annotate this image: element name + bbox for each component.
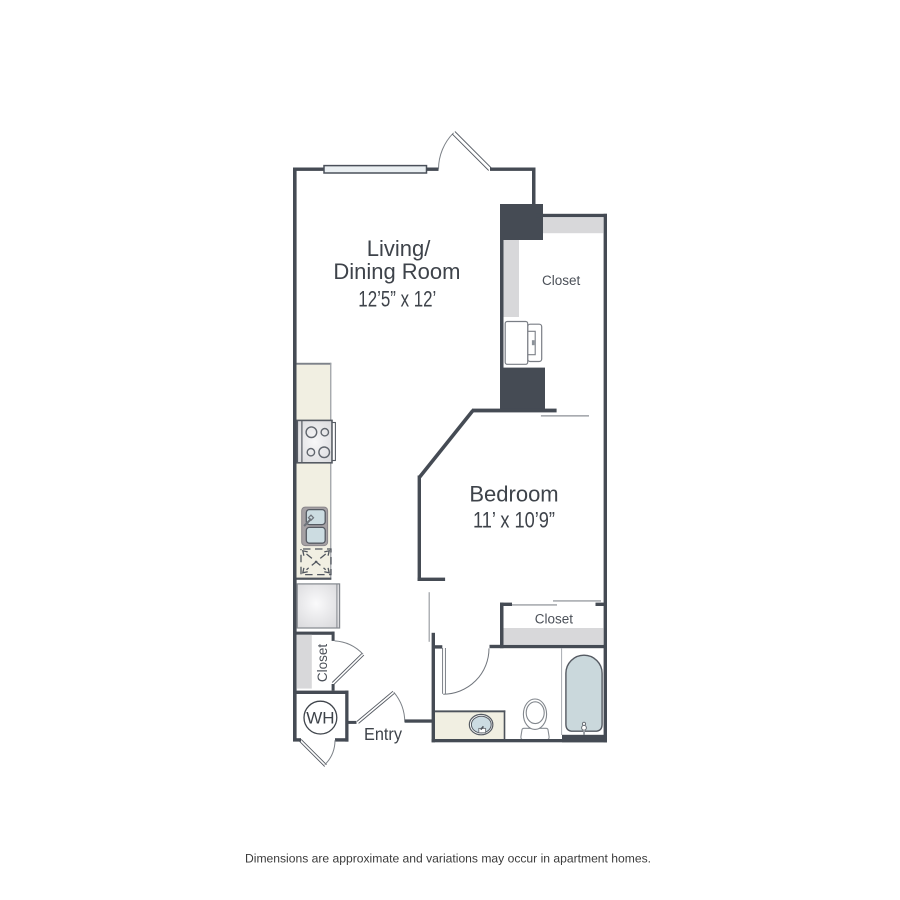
svg-text:WH: WH	[306, 709, 334, 728]
svg-text:Closet: Closet	[542, 273, 581, 288]
svg-text:Entry: Entry	[364, 724, 402, 744]
svg-text:12’5” x 12’: 12’5” x 12’	[358, 286, 436, 311]
svg-text:Closet: Closet	[535, 611, 574, 626]
svg-text:Living/: Living/	[367, 236, 431, 261]
svg-text:Dining Room: Dining Room	[333, 259, 460, 284]
svg-text:Bedroom: Bedroom	[469, 481, 558, 506]
svg-text:Dimensions are approximate and: Dimensions are approximate and variation…	[245, 852, 651, 866]
svg-text:Closet: Closet	[315, 644, 330, 683]
svg-text:11’ x 10’9”: 11’ x 10’9”	[473, 508, 555, 533]
